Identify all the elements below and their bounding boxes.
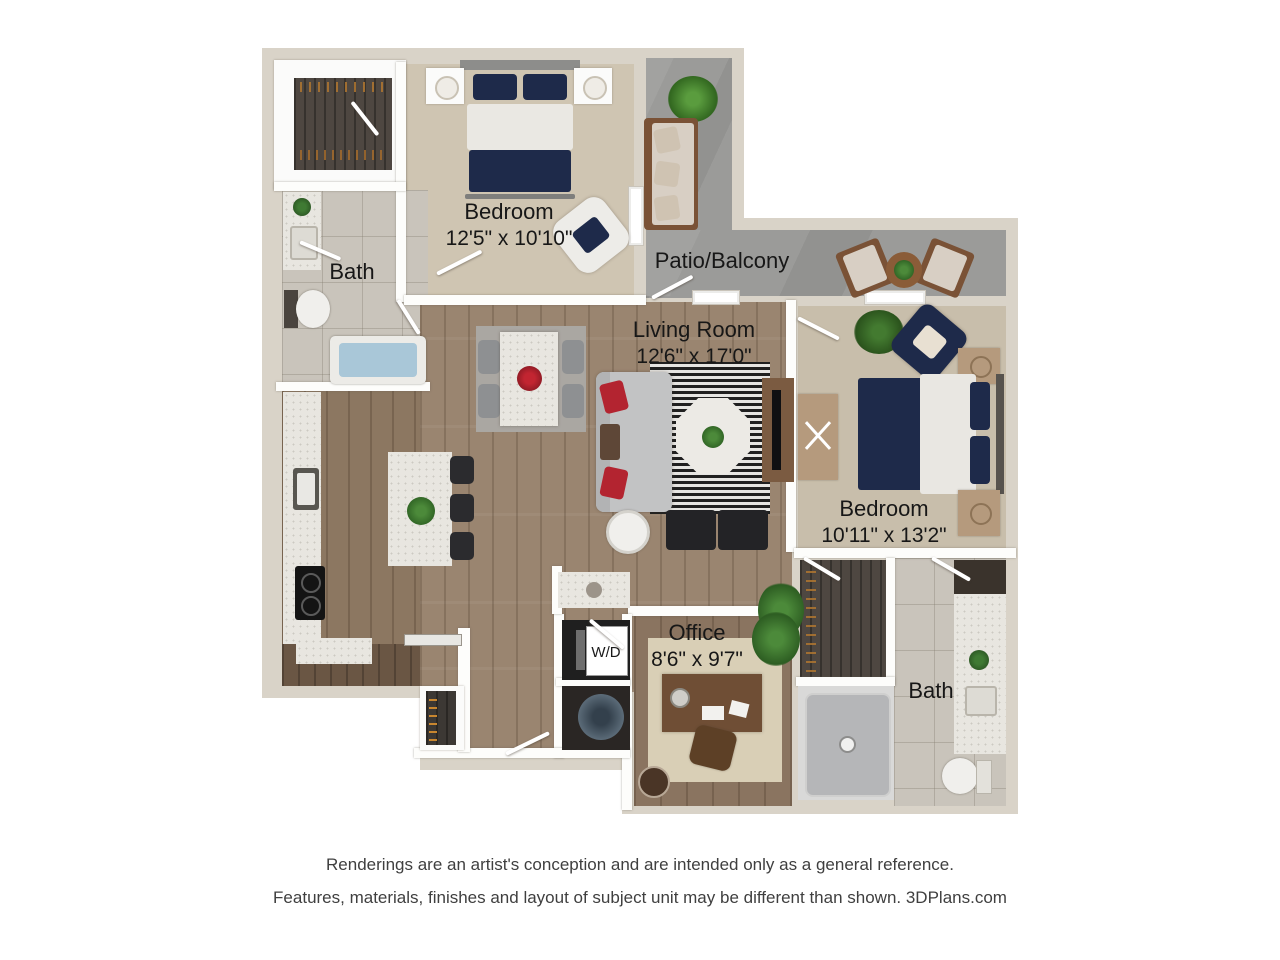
- dining-chair: [478, 340, 500, 374]
- bed-foot-blanket: [469, 150, 571, 192]
- dining-centerpiece-flowers: [517, 366, 542, 391]
- room-dimensions: 12'6" x 17'0": [584, 344, 804, 370]
- tub-water: [339, 343, 417, 377]
- bedroom-1-nightstand-left: [426, 68, 464, 104]
- bed-headboard: [996, 374, 1004, 494]
- closet-1-clothes-rail-top: [300, 82, 386, 92]
- shower-drain: [839, 736, 856, 753]
- living-sofa: [596, 372, 672, 512]
- kitchen-island: [388, 452, 452, 566]
- desk-paper: [729, 700, 750, 718]
- closet-2-clothes-rail: [806, 568, 816, 672]
- room-name: Bedroom: [774, 496, 994, 523]
- desk-paper: [702, 706, 724, 720]
- toilet-tank: [976, 760, 992, 794]
- room-label-patio: Patio/Balcony: [612, 248, 832, 275]
- tv-console: [762, 378, 794, 482]
- vanity-plant: [293, 198, 311, 216]
- armchair-pillow: [911, 324, 948, 361]
- room-label-bath-2: Bath: [891, 678, 971, 705]
- wall-bedroom1-bottom: [404, 295, 646, 305]
- patio-sofa-pillow: [653, 160, 680, 187]
- dining-chair: [562, 340, 584, 374]
- bath-2-toilet: [942, 756, 992, 796]
- disclaimer-line-2: Features, materials, finishes and layout…: [0, 881, 1280, 914]
- living-ottoman: [666, 510, 716, 550]
- living-ottoman: [718, 510, 768, 550]
- living-patio-door: [692, 290, 740, 305]
- bedroom-1-window: [628, 186, 644, 246]
- room-name: Bedroom: [399, 199, 619, 226]
- lamp: [583, 76, 607, 100]
- bar-stool: [450, 456, 474, 484]
- lamp: [435, 76, 459, 100]
- dining-chair: [478, 384, 500, 418]
- bed-headboard: [460, 60, 580, 70]
- toilet-bowl: [942, 758, 978, 794]
- room-dimensions: 8'6" x 9'7": [607, 647, 787, 673]
- kitchen-counter-bottom: [296, 638, 372, 664]
- bed-pillow-right: [523, 74, 567, 100]
- room-dimensions: 10'11" x 13'2": [774, 523, 994, 549]
- room-name: Bath: [312, 259, 392, 286]
- wall-closet2-bath2: [886, 558, 895, 686]
- office-desk: [662, 674, 762, 732]
- island-plant: [407, 497, 435, 525]
- patio-sofa-pillow: [653, 126, 681, 154]
- bedroom-1-nightstand-right: [574, 68, 612, 104]
- patio-table-plant: [894, 260, 914, 280]
- sink-basin: [297, 473, 315, 505]
- room-label-bath-1: Bath: [312, 259, 392, 286]
- room-name: Living Room: [584, 317, 804, 344]
- room-name: W/D: [591, 644, 620, 661]
- hall-cabinet: [558, 572, 630, 608]
- kitchen-sink: [293, 468, 319, 510]
- patio-chair-cushion: [842, 244, 888, 292]
- bed-duvet: [467, 104, 573, 150]
- wall-closet2-bottom: [796, 677, 895, 686]
- wall-bedroom2-bottom: [794, 548, 1016, 558]
- room-name: Bath: [891, 678, 971, 705]
- coffee-table-plant: [702, 426, 724, 448]
- bedroom-2-desk: [798, 394, 838, 480]
- bar-stool: [450, 532, 474, 560]
- floor-plan-canvas: Bedroom 12'5" x 10'10" Bath Patio/Balcon…: [0, 0, 1280, 960]
- room-name: Office: [607, 620, 787, 647]
- entry-coat-closet: [420, 686, 464, 750]
- tv-screen: [772, 390, 781, 470]
- patio-sofa-pillow: [653, 194, 680, 221]
- bed-pillow-left: [473, 74, 517, 100]
- desk-lamp: [670, 688, 690, 708]
- bedroom-2-bed: [858, 374, 1004, 494]
- cabinet-decor: [586, 582, 602, 598]
- utility-fan: [578, 694, 624, 740]
- room-dimensions: 12'5" x 10'10": [399, 226, 619, 252]
- patio-side-table: [886, 252, 922, 288]
- patio-sofa: [644, 118, 698, 230]
- bath-1-tub: [330, 336, 426, 384]
- room-label-bedroom-1: Bedroom 12'5" x 10'10": [399, 199, 619, 251]
- bedroom-1-bed: [460, 60, 580, 202]
- office-speaker: [638, 766, 670, 798]
- bath-2-vanity: [954, 594, 1006, 754]
- utility-closet: [562, 686, 630, 750]
- room-label-laundry: W/D: [584, 643, 628, 663]
- room-label-living-room: Living Room 12'6" x 17'0": [584, 317, 804, 369]
- wall-closet1-bottom: [274, 182, 406, 191]
- room-label-bedroom-2: Bedroom 10'11" x 13'2": [774, 496, 994, 548]
- living-side-table: [606, 510, 650, 554]
- patio-plant: [668, 76, 718, 122]
- kitchen-cooktop: [295, 566, 325, 620]
- closet-1-clothes-rail-bottom: [300, 150, 386, 160]
- disclaimer-line-1: Renderings are an artist's conception an…: [0, 848, 1280, 881]
- sofa-throw: [600, 424, 620, 460]
- coat-closet-shoes: [429, 695, 437, 741]
- bedroom-2-window: [864, 290, 926, 305]
- burner: [301, 573, 321, 593]
- toilet-bowl: [296, 290, 330, 328]
- burner: [301, 596, 321, 616]
- shower: [798, 686, 894, 800]
- room-name: Patio/Balcony: [612, 248, 832, 275]
- bar-stool: [450, 494, 474, 522]
- vanity-plant: [969, 650, 989, 670]
- bed-pillow-top: [970, 382, 990, 430]
- sofa-pillow-red-bottom: [599, 466, 629, 500]
- room-label-office: Office 8'6" x 9'7": [607, 620, 787, 672]
- entry-bench: [404, 634, 462, 646]
- disclaimer: Renderings are an artist's conception an…: [0, 848, 1280, 914]
- bed-pillow-bottom: [970, 436, 990, 484]
- dining-chair: [562, 384, 584, 418]
- bed-sheet: [920, 374, 976, 494]
- bed-blanket: [858, 378, 924, 490]
- bath-1-toilet: [284, 288, 330, 330]
- patio-chair-cushion: [922, 244, 968, 292]
- dining-table: [500, 332, 558, 426]
